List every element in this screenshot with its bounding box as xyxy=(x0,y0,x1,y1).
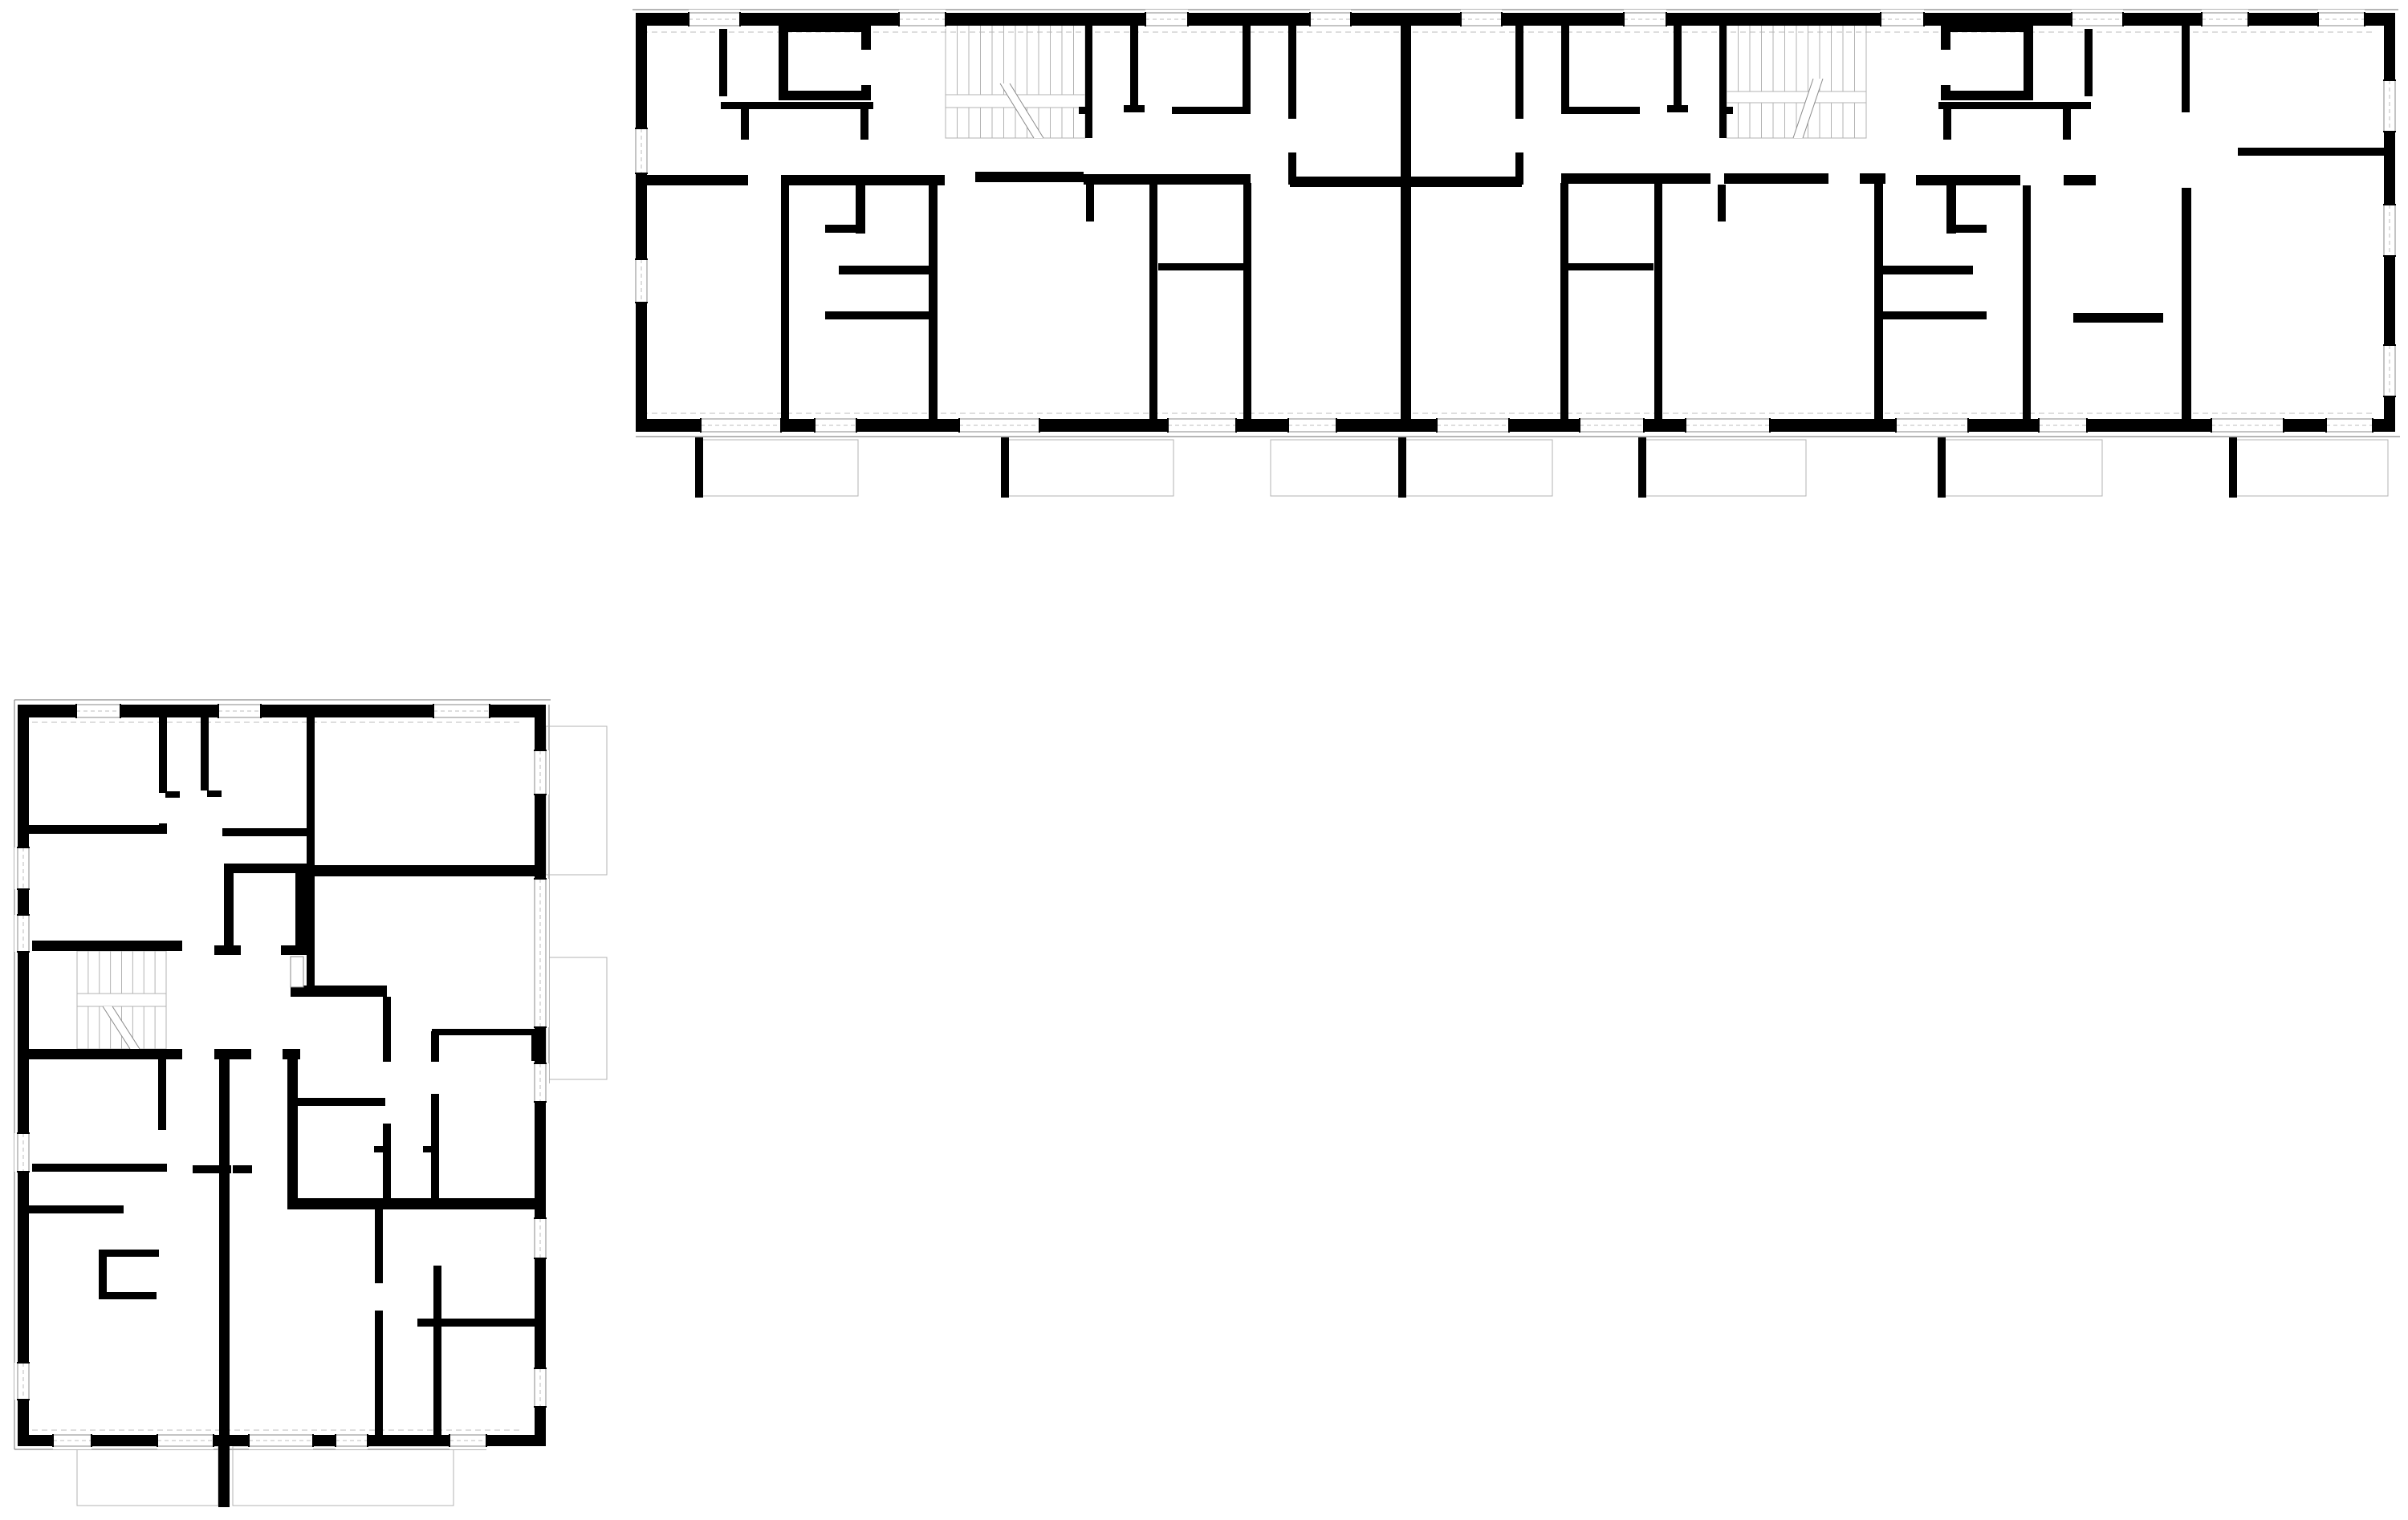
floor-plans-canvas xyxy=(0,0,2408,1520)
window xyxy=(2381,345,2398,396)
window xyxy=(689,10,740,29)
upper-long-block-plan xyxy=(633,10,2400,498)
floor-plan-sheet xyxy=(0,0,2408,1520)
window xyxy=(157,1432,214,1449)
window xyxy=(959,416,1039,435)
window xyxy=(14,847,32,889)
window xyxy=(815,416,856,435)
window xyxy=(531,750,549,795)
balcony-outline xyxy=(1403,440,1552,496)
slab-outline-lines xyxy=(14,700,551,1449)
dashed-reference-lines xyxy=(642,32,2376,413)
balcony-outline xyxy=(546,726,607,875)
window xyxy=(633,128,650,173)
balcony-outline xyxy=(77,1446,218,1506)
window xyxy=(1145,10,1188,29)
window xyxy=(14,915,32,952)
balcony-outline xyxy=(233,1446,454,1506)
window xyxy=(531,1063,549,1102)
window xyxy=(531,1368,549,1407)
walls xyxy=(18,705,546,1507)
window xyxy=(336,1432,368,1449)
balcony-outline xyxy=(546,957,607,1079)
windows xyxy=(14,701,549,1449)
window xyxy=(1624,10,1666,29)
window xyxy=(1437,416,1509,435)
window xyxy=(899,10,946,29)
window xyxy=(218,701,261,721)
window xyxy=(2318,10,2365,29)
window xyxy=(2039,416,2087,435)
balcony-outline xyxy=(1942,440,2102,496)
window xyxy=(53,1432,92,1449)
window xyxy=(1288,416,1336,435)
window xyxy=(2381,205,2398,256)
window xyxy=(531,1218,549,1258)
stair-run xyxy=(1727,24,1866,138)
stair-run xyxy=(77,951,166,1049)
window xyxy=(531,879,549,1027)
balcony-outline xyxy=(1006,440,1173,496)
window xyxy=(76,701,120,721)
window xyxy=(249,1432,313,1449)
balcony-outline xyxy=(700,440,858,496)
window xyxy=(633,259,650,303)
window xyxy=(14,1133,32,1172)
balconies xyxy=(695,437,2388,498)
window xyxy=(1686,416,1770,435)
window xyxy=(1881,10,1924,29)
stair-cores xyxy=(77,951,166,1049)
walls xyxy=(636,13,2395,432)
stair-run xyxy=(946,24,1085,138)
balcony-outline xyxy=(2234,440,2388,496)
balcony-outline xyxy=(1643,440,1806,496)
window xyxy=(449,1432,486,1449)
window xyxy=(701,416,781,435)
balconies xyxy=(77,726,607,1507)
duct-outlines xyxy=(291,957,303,987)
window xyxy=(433,701,490,721)
window xyxy=(2326,416,2373,435)
window xyxy=(1461,10,1502,29)
window xyxy=(1310,10,1351,29)
window xyxy=(2211,416,2284,435)
window xyxy=(1580,416,1644,435)
window xyxy=(1168,416,1236,435)
window xyxy=(14,1363,32,1400)
window xyxy=(2381,80,2398,132)
lower-point-block-plan xyxy=(14,700,607,1507)
window xyxy=(2202,10,2248,29)
balcony-outline xyxy=(1271,440,1403,496)
window xyxy=(1896,416,1968,435)
window xyxy=(2072,10,2123,29)
